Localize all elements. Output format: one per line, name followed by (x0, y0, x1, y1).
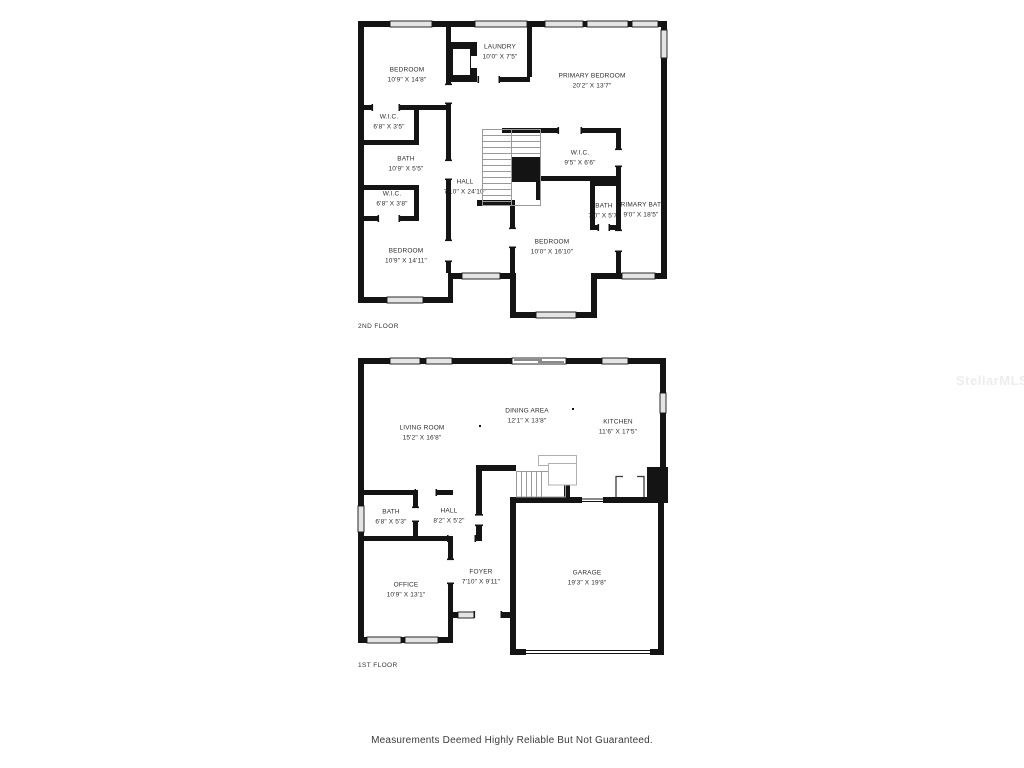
room-label-hall-1f: HALL 8'2" X 5'2" (433, 507, 464, 526)
room-dims: 19'3" X 19'8" (568, 578, 607, 588)
room-name: BEDROOM (531, 238, 573, 248)
room-name: W.I.C. (376, 190, 407, 200)
room-label-bedroom-bottom-left: BEDROOM 10'9" X 14'11" (385, 247, 427, 266)
room-name: DINING AREA (505, 407, 549, 417)
room-name: GARAGE (568, 569, 607, 579)
room-label-bath-1f: BATH 6'8" X 5'3" (375, 508, 406, 527)
room-name: BATH (389, 155, 424, 165)
first-floor-windows (358, 358, 666, 643)
room-dims: 6'8" X 5'3" (375, 517, 406, 527)
second-floor-stairs (483, 130, 541, 206)
room-dims: 6'8" X 3'8" (376, 199, 407, 209)
room-label-wic-left-upper: W.I.C. 6'8" X 3'5" (373, 113, 404, 132)
room-name: BATH (588, 202, 619, 212)
stellar-mls-watermark: StellarMLS (956, 373, 1024, 388)
room-label-kitchen: KITCHEN 11'6" X 17'5" (599, 418, 637, 437)
kitchen-pantry (616, 476, 644, 497)
room-dims: 7'10" X 9'11" (462, 577, 500, 587)
room-dims: 7'0" X 5'7" (588, 211, 619, 221)
room-name: PRIMARY BEDROOM (558, 72, 625, 82)
room-name: KITCHEN (599, 418, 637, 428)
room-name: OFFICE (387, 581, 426, 591)
room-dims: 10'9" X 14'8" (388, 75, 427, 85)
room-name: HALL (433, 507, 464, 517)
room-label-garage: GARAGE 19'3" X 19'8" (568, 569, 607, 588)
room-dims: 9'5" X 6'6" (564, 158, 595, 168)
room-name: LIVING ROOM (400, 424, 445, 434)
room-name: LAUNDRY (483, 43, 518, 53)
room-label-dining-area: DINING AREA 12'1" X 13'8" (505, 407, 549, 426)
first-floor-stairs (517, 472, 566, 498)
second-floor-windows (387, 21, 667, 318)
first-floor-plan-graphics (358, 358, 668, 655)
room-dims: 10'9" X 13'1" (387, 590, 426, 600)
room-dims: 8'2" X 5'2" (433, 516, 464, 526)
sliding-door (512, 358, 566, 364)
room-name: HALL (444, 178, 486, 188)
first-floor-title: 1ST FLOOR (358, 662, 398, 669)
floorplan-page: BEDROOM 10'9" X 14'8" LAUNDRY 10'0" X 7'… (0, 0, 1024, 768)
floor-plan-drawing (0, 0, 1024, 768)
room-dims: 15'2" X 16'8" (400, 433, 445, 443)
room-name: PRIMARY BATH (616, 201, 666, 211)
stair-landing-outline (539, 456, 577, 486)
room-label-primary-bedroom: PRIMARY BEDROOM 20'2" X 13'7" (558, 72, 625, 91)
room-dims: 10'0" X 7'5" (483, 52, 518, 62)
room-name: W.I.C. (564, 149, 595, 159)
room-dims: 20'2" X 13'7" (558, 81, 625, 91)
room-dims: 12'1" X 13'8" (505, 416, 549, 426)
room-dims: 10'9" X 14'11" (385, 256, 427, 266)
measurement-disclaimer: Measurements Deemed Highly Reliable But … (0, 735, 1024, 746)
room-label-foyer: FOYER 7'10" X 9'11" (462, 568, 500, 587)
room-name: FOYER (462, 568, 500, 578)
room-dims: 6'8" X 3'5" (373, 122, 404, 132)
room-name: W.I.C. (373, 113, 404, 123)
room-label-laundry: LAUNDRY 10'0" X 7'5" (483, 43, 518, 62)
first-floor-walls (358, 358, 668, 655)
room-label-office: OFFICE 10'9" X 13'1" (387, 581, 426, 600)
room-label-living-room: LIVING ROOM 15'2" X 16'8" (400, 424, 445, 443)
laundry-closet (453, 49, 478, 75)
room-dims: 10'9" X 5'5" (389, 164, 424, 174)
room-dims: 11'6" X 17'5" (599, 427, 637, 437)
room-label-primary-bath: PRIMARY BATH 9'0" X 18'5" (616, 201, 666, 220)
room-dims: 9'0" X 18'5" (616, 210, 666, 220)
room-dims: 7'10" X 24'10" (444, 187, 486, 197)
room-label-bedroom-bottom-center: BEDROOM 10'0" X 16'10" (531, 238, 573, 257)
room-label-hall-2f: HALL 7'10" X 24'10" (444, 178, 486, 197)
room-name: BEDROOM (385, 247, 427, 257)
room-dims: 10'0" X 16'10" (531, 247, 573, 257)
room-label-bedroom-top-left: BEDROOM 10'9" X 14'8" (388, 66, 427, 85)
room-label-wic-primary: W.I.C. 9'5" X 6'6" (564, 149, 595, 168)
room-label-bath-left: BATH 10'9" X 5'5" (389, 155, 424, 174)
room-name: BEDROOM (388, 66, 427, 76)
room-label-bath-center: BATH 7'0" X 5'7" (588, 202, 619, 221)
second-floor-title: 2ND FLOOR (358, 323, 399, 330)
room-name: BATH (375, 508, 406, 518)
room-label-wic-left-lower: W.I.C. 6'8" X 3'8" (376, 190, 407, 209)
